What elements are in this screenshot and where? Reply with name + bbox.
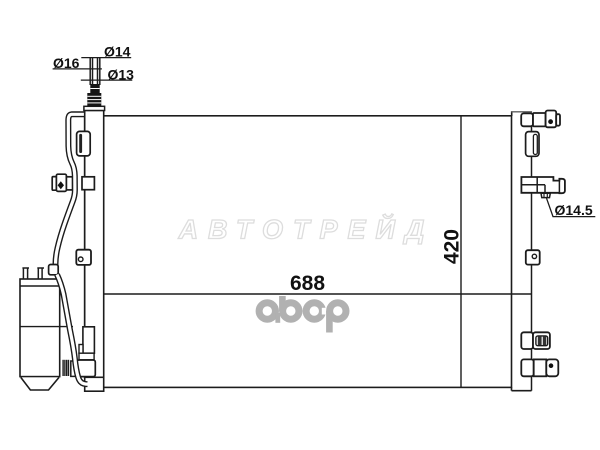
- svg-text:Ø14: Ø14: [104, 44, 131, 60]
- svg-text:420: 420: [441, 229, 464, 264]
- svg-text:АВТОТРЕЙД: АВТОТРЕЙД: [178, 212, 435, 244]
- svg-text:Ø16: Ø16: [53, 55, 80, 71]
- svg-text:688: 688: [290, 272, 325, 295]
- svg-text:Ø14.5: Ø14.5: [555, 202, 593, 218]
- svg-text:Ø13: Ø13: [108, 66, 135, 82]
